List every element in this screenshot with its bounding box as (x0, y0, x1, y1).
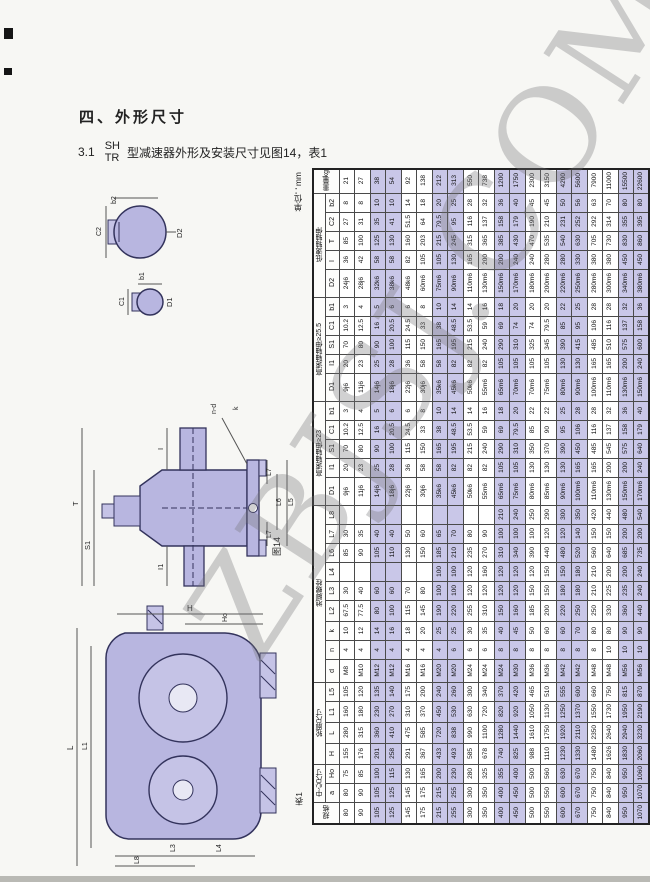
cell: 36 (401, 459, 417, 478)
cell: 280m6 (587, 270, 603, 298)
cell (401, 563, 417, 582)
cell: 25 (448, 194, 464, 213)
cell: 200 (634, 525, 650, 544)
cell: 35 (370, 213, 386, 232)
cell: 6 (479, 641, 495, 660)
cell: 58 (417, 459, 433, 478)
cell: 28j6 (355, 270, 371, 298)
cell: 74 (525, 317, 541, 336)
cell: 510 (603, 336, 619, 355)
scan-smudge (4, 28, 13, 39)
cell: 28 (587, 402, 603, 421)
cell: 1280 (494, 723, 510, 744)
cell: 5 (370, 298, 386, 317)
cell: 231 (556, 213, 572, 232)
cell: 80 (370, 601, 386, 622)
cell: 185 (525, 601, 541, 622)
cell: 400 (494, 803, 510, 824)
cell: 130m6 (603, 478, 619, 506)
cell: 25 (448, 622, 464, 641)
row-label: T (325, 232, 339, 251)
row-label: L7 (325, 525, 339, 544)
cell: 38 (432, 317, 448, 336)
cell: 9j6 (339, 374, 355, 402)
cell: 48.5 (448, 317, 464, 336)
cell: 82 (401, 251, 417, 270)
cell: M56 (618, 660, 634, 683)
cell: 28 (386, 355, 402, 374)
row-label: L1 (325, 702, 339, 723)
group-label: 低速轴轴伸 (313, 194, 325, 298)
cell: 235 (618, 582, 634, 601)
dim-l7-bottom: L7 (266, 530, 273, 538)
cell: 750 (603, 683, 619, 702)
cell: 575 (618, 440, 634, 459)
cell: 180 (572, 582, 588, 601)
cell: 85 (339, 544, 355, 563)
cell: 250 (587, 601, 603, 622)
cell: 3 (339, 402, 355, 421)
cell: 8 (339, 194, 355, 213)
cell: 500 (525, 784, 541, 803)
model-top: SH (105, 140, 120, 152)
cell: 105 (510, 459, 526, 478)
cell: 8 (417, 298, 433, 317)
sub-heading: 3.1 SH TR 型减速器外形及安装尺寸见图14，表1 (78, 140, 327, 164)
cell: 33 (417, 421, 433, 440)
cell: 1060 (634, 765, 650, 784)
cell: 1480 (587, 744, 603, 765)
cell: 310 (510, 440, 526, 459)
cell: 60 (386, 582, 402, 601)
cell: 120 (494, 563, 510, 582)
row-label: b2 (325, 194, 339, 213)
cell: 59 (479, 421, 495, 440)
cell: 200 (541, 601, 557, 622)
cell: 290 (494, 336, 510, 355)
cell: 600 (556, 803, 572, 824)
cell: 165 (587, 355, 603, 374)
cell: 45 (525, 194, 541, 213)
cell: 125 (370, 232, 386, 251)
cell: 255 (448, 803, 464, 824)
cell: 245 (448, 232, 464, 251)
cell: 40 (355, 582, 371, 601)
cell: 80 (587, 622, 603, 641)
table-row: 规格80901051251451752152553003504004505005… (313, 803, 649, 824)
cell: M16 (417, 660, 433, 683)
cell: 280 (541, 251, 557, 270)
cell: 200 (417, 683, 433, 702)
cell: 240 (510, 506, 526, 525)
cell: 20 (510, 402, 526, 421)
group-label: 地脚螺栓 (313, 506, 325, 683)
cell: 24.5 (401, 317, 417, 336)
cell: 4 (355, 298, 371, 317)
cell: 82 (479, 355, 495, 374)
cell: 165 (432, 440, 448, 459)
cell: 100m6 (572, 478, 588, 506)
cell: 1100 (479, 723, 495, 744)
cell: 180 (572, 563, 588, 582)
cell: 450 (572, 440, 588, 459)
cell: 201 (370, 744, 386, 765)
cell (448, 506, 464, 525)
cell: 25 (556, 402, 572, 421)
cell: M20 (448, 660, 464, 683)
cell: 115 (386, 765, 402, 784)
cell: 292 (587, 213, 603, 232)
dim-s1: S1 (83, 541, 92, 550)
cell: 105 (494, 355, 510, 374)
cell: 53.5 (463, 421, 479, 440)
cell: 48.5 (448, 421, 464, 440)
cell: 25 (432, 622, 448, 641)
cell: 80m6 (556, 374, 572, 402)
row-label: 规格 (313, 803, 339, 824)
cell: 165 (463, 251, 479, 270)
cell: 575 (618, 336, 634, 355)
cell: 390 (525, 544, 541, 563)
cell: 59 (479, 317, 495, 336)
table-row: 中心尺寸Ho7585100115130165200230280325355400… (313, 765, 649, 784)
row-label: a (325, 784, 339, 803)
cell: 60 (541, 622, 557, 641)
cell: 35k6 (432, 374, 448, 402)
cell: 92 (401, 169, 417, 194)
group-label: 轮廓尺寸 (313, 683, 325, 765)
cell: M24 (463, 660, 479, 683)
cell: 82 (463, 355, 479, 374)
cell: 660 (587, 683, 603, 702)
cell: 165 (587, 459, 603, 478)
cell: 1070 (634, 784, 650, 803)
cell: 240 (479, 336, 495, 355)
cell: 45k6 (448, 374, 464, 402)
cell: 350 (479, 784, 495, 803)
table-row: 轮廓尺寸L51051201351401752002402603003403704… (313, 683, 649, 702)
cell: 258 (386, 744, 402, 765)
cell: 200 (618, 563, 634, 582)
cell: 390 (556, 440, 572, 459)
cell: 105 (494, 459, 510, 478)
cell: 41 (386, 213, 402, 232)
cell: 240 (634, 459, 650, 478)
cell: 95 (572, 317, 588, 336)
cell: 100 (510, 525, 526, 544)
cell: 22j6 (401, 478, 417, 506)
row-label: L4 (325, 563, 339, 582)
cell: M8 (339, 660, 355, 683)
cell: 235 (463, 544, 479, 563)
cell: 9j6 (339, 478, 355, 506)
figure-side-view: T S1 I I1 n-d k L7 L6 L5 L7 图14 (62, 378, 300, 603)
cell: 180 (355, 702, 371, 723)
cell (370, 506, 386, 525)
cell: 280 (556, 251, 572, 270)
cell: 185 (432, 544, 448, 563)
cell: 105 (339, 683, 355, 702)
cell: 69 (494, 317, 510, 336)
cell: 2300 (525, 169, 541, 194)
cell: 410 (386, 723, 402, 744)
cell: 14j6 (370, 374, 386, 402)
cell: 1920 (556, 723, 572, 744)
cell: 203 (417, 232, 433, 251)
cell: 6 (401, 298, 417, 317)
cell (463, 506, 479, 525)
cell: 82 (448, 355, 464, 374)
cell: 170m6 (634, 478, 650, 506)
cell: 2940 (618, 723, 634, 744)
cell: 1370 (572, 702, 588, 723)
document-page: 四、外形尺寸 3.1 SH TR 型减速器外形及安装尺寸见图14，表1 单位：m… (0, 0, 650, 882)
cell: 450 (510, 784, 526, 803)
cell: 80 (603, 622, 619, 641)
cell: 550 (463, 169, 479, 194)
cell: 300m6 (603, 270, 619, 298)
row-label: L2 (325, 601, 339, 622)
row-label: L8 (325, 506, 339, 525)
cell: 100 (525, 525, 541, 544)
cell: 210 (541, 213, 557, 232)
cell: 1050 (525, 702, 541, 723)
cell: 210 (587, 563, 603, 582)
cell: 2060 (634, 744, 650, 765)
row-label: H (325, 744, 339, 765)
cell: 825 (510, 744, 526, 765)
cell: 36 (634, 298, 650, 317)
cell: 20 (541, 298, 557, 317)
cell: 51.5 (401, 213, 417, 232)
cell: 195 (448, 336, 464, 355)
cell (432, 506, 448, 525)
cell: 80 (417, 582, 433, 601)
cell: 90m6 (572, 374, 588, 402)
cell: 230 (370, 702, 386, 723)
cell: 80m6 (525, 478, 541, 506)
cell: 130 (525, 459, 541, 478)
cell: 40 (634, 402, 650, 421)
cell: 32k6 (370, 270, 386, 298)
cell: 520 (572, 544, 588, 563)
cell: 150m6 (618, 478, 634, 506)
cell: 14 (463, 402, 479, 421)
dim-d1: D1 (165, 297, 174, 307)
cell: 550 (541, 784, 557, 803)
cell: 1230 (556, 744, 572, 765)
cell (401, 506, 417, 525)
row-label: D1 (325, 478, 339, 506)
group-label: 中心尺寸 (313, 765, 325, 803)
cell: 12.5 (355, 421, 371, 440)
cell: 79.5 (510, 421, 526, 440)
cell: 220m6 (556, 270, 572, 298)
cell: 250 (572, 601, 588, 622)
cell: 22 (556, 298, 572, 317)
cell: 820 (494, 702, 510, 723)
cell: 440 (541, 544, 557, 563)
cell: 18 (417, 194, 433, 213)
row-label: b1 (325, 402, 339, 421)
cell: 10 (618, 641, 634, 660)
cell: 158 (634, 317, 650, 336)
cell: 20.5 (386, 317, 402, 336)
cell: M48 (603, 660, 619, 683)
cell: 30 (463, 622, 479, 641)
cell: 22j6 (401, 374, 417, 402)
cell: 200 (618, 525, 634, 544)
cell: 130 (401, 765, 417, 784)
cell: 115 (401, 440, 417, 459)
cell: 240 (510, 251, 526, 270)
cell: 79.5 (432, 213, 448, 232)
cell: 6 (463, 641, 479, 660)
cell: 10 (386, 194, 402, 213)
cell: 74 (510, 317, 526, 336)
row-label: S1 (325, 440, 339, 459)
cell: 838 (448, 723, 464, 744)
cell: 20 (339, 355, 355, 374)
cell: 1250 (556, 702, 572, 723)
figure-caption: 图14 (272, 537, 282, 556)
cell: 130 (448, 251, 464, 270)
cell: 345 (541, 336, 557, 355)
cell: 70 (339, 440, 355, 459)
cell: 365 (479, 232, 495, 251)
cell: 63 (587, 194, 603, 213)
cell: 180 (556, 582, 572, 601)
cell: 440 (634, 601, 650, 622)
cell: 79.5 (541, 317, 557, 336)
row-label: L3 (325, 582, 339, 601)
cell: 65m6 (494, 478, 510, 506)
cell: 212 (432, 169, 448, 194)
cell: 145 (417, 601, 433, 622)
cell: M42 (572, 660, 588, 683)
cell: 65 (432, 525, 448, 544)
cell: 540 (556, 232, 572, 251)
cell: 120 (463, 563, 479, 582)
cell: 500 (525, 765, 541, 784)
cell: 720 (479, 702, 495, 723)
row-label: d (325, 660, 339, 683)
cell: 18 (401, 622, 417, 641)
table-row: dM8M10M12M12M16M16M20M20M24M24M24M30M36M… (313, 660, 649, 683)
table-row: L267.577.5801001151451902202553101501601… (313, 601, 649, 622)
cell: 32 (618, 298, 634, 317)
cell: 40 (510, 194, 526, 213)
cell: 310 (510, 336, 526, 355)
cell: 400 (494, 784, 510, 803)
table-row: T851001251301602032152453153653854304705… (313, 232, 649, 251)
cell: 55m6 (479, 478, 495, 506)
cell: 420 (587, 506, 603, 525)
cell: 1070 (634, 803, 650, 824)
cell: 30j6 (417, 374, 433, 402)
row-label: L (325, 723, 339, 744)
group-label: 高速轴轴伸≥23 (313, 402, 325, 506)
cell: M24 (494, 660, 510, 683)
cell: 70 (572, 622, 588, 641)
cell: 16 (479, 402, 495, 421)
cell: 200m6 (541, 270, 557, 298)
cell: 120 (355, 683, 371, 702)
cell: 125 (386, 784, 402, 803)
cell: 255 (448, 784, 464, 803)
cell: 20 (510, 298, 526, 317)
cell: 1626 (603, 744, 619, 765)
dim-nd: n-d (211, 404, 218, 414)
cell: 130 (572, 355, 588, 374)
cell: 950 (618, 765, 634, 784)
cell: 370 (541, 440, 557, 459)
cell: 270 (386, 702, 402, 723)
cell: 1950 (618, 702, 634, 723)
cell: 220 (556, 601, 572, 622)
cell: 137 (479, 213, 495, 232)
cell: 116 (603, 317, 619, 336)
cell: 585 (463, 744, 479, 765)
cell: 22 (541, 402, 557, 421)
cell: 230 (448, 765, 464, 784)
cell: 215 (432, 232, 448, 251)
cell: 125 (386, 803, 402, 824)
cell: 270 (479, 544, 495, 563)
cell: 10 (432, 298, 448, 317)
cell: 950 (618, 784, 634, 803)
cell: 215 (463, 336, 479, 355)
cell: 8 (417, 402, 433, 421)
cell: 4 (401, 641, 417, 660)
cell: 300 (463, 784, 479, 803)
table-row: L280315360410475585720838990110012801440… (313, 723, 649, 744)
cell: 3 (339, 298, 355, 317)
cell: 670 (572, 803, 588, 824)
cell: M16 (401, 660, 417, 683)
cell: 1130 (541, 702, 557, 723)
cell: 315 (463, 232, 479, 251)
cell: 85m6 (541, 478, 557, 506)
cell: 600 (556, 784, 572, 803)
cell: 12 (355, 622, 371, 641)
cell: 510 (541, 683, 557, 702)
cell: 137 (618, 317, 634, 336)
cell: 340m6 (618, 270, 634, 298)
cell: 280 (339, 723, 355, 744)
dim-c2: C2 (96, 227, 103, 236)
cell: 54 (386, 169, 402, 194)
cell: 90 (479, 525, 495, 544)
scan-smudge (4, 68, 12, 75)
cell: 27 (355, 169, 371, 194)
cell: 42 (355, 251, 371, 270)
cell: 485 (587, 336, 603, 355)
cell: 115 (401, 336, 417, 355)
cell: 20.5 (386, 421, 402, 440)
table-row: D224j628j632k638k648k660m675m690m6110m61… (313, 270, 649, 298)
cell: 6 (386, 402, 402, 421)
cell: 990 (463, 723, 479, 744)
cell: 210 (587, 582, 603, 601)
cell: 200 (479, 251, 495, 270)
cell (417, 506, 433, 525)
cell: 110m6 (463, 270, 479, 298)
row-label: 重量kg (313, 169, 339, 194)
cell (386, 506, 402, 525)
cell: 105 (525, 355, 541, 374)
cell: 290 (494, 440, 510, 459)
